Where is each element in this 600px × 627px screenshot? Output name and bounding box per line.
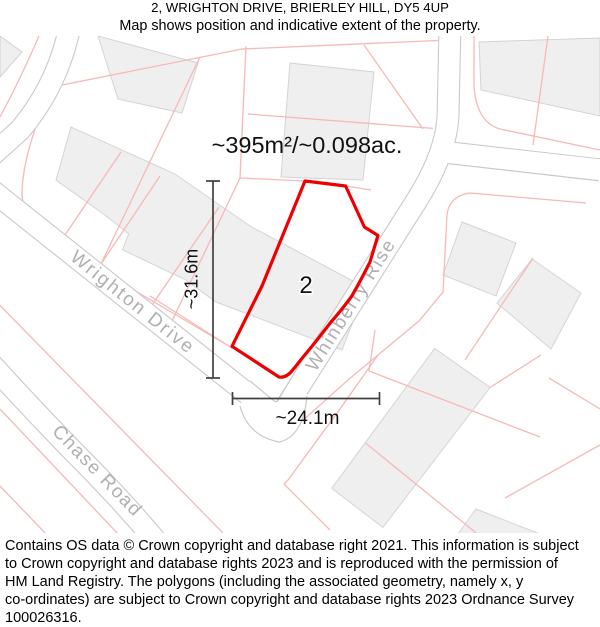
svg-text:2: 2 <box>299 272 312 299</box>
svg-text:~395m²/~0.098ac.: ~395m²/~0.098ac. <box>212 132 403 158</box>
svg-text:~31.6m: ~31.6m <box>182 249 202 310</box>
svg-text:~24.1m: ~24.1m <box>276 408 340 429</box>
